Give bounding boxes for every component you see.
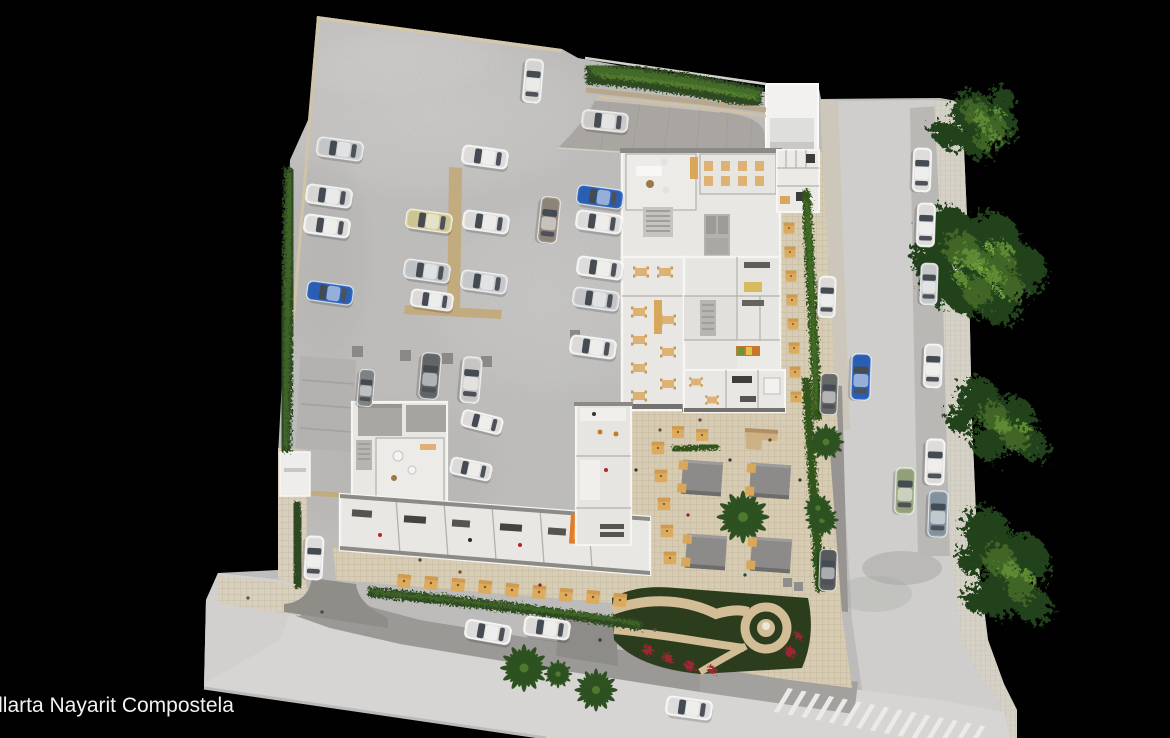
svg-text:Vallarta Nayarit Compostela: Vallarta Nayarit Compostela bbox=[0, 694, 234, 717]
